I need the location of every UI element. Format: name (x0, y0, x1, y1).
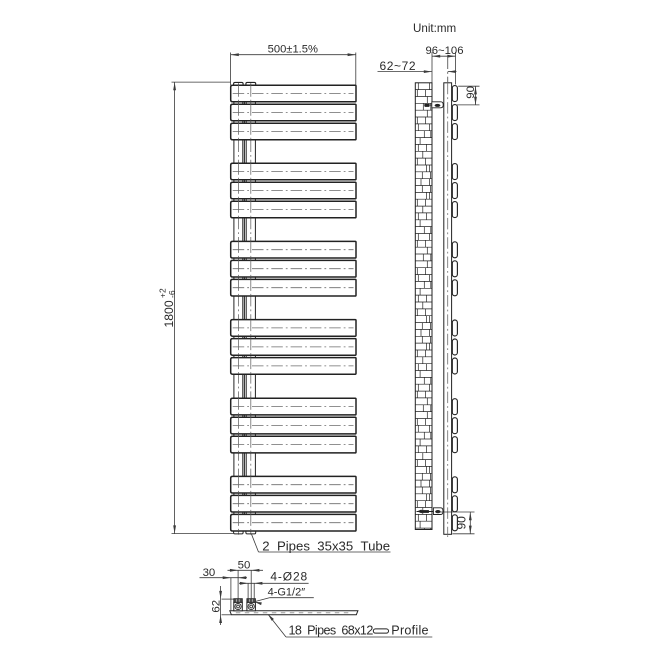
svg-text:62~72: 62~72 (379, 59, 416, 73)
svg-text:500±1.5%: 500±1.5% (268, 43, 318, 55)
svg-text:+2: +2 (157, 288, 167, 298)
svg-text:4-G1/2″: 4-G1/2″ (268, 587, 306, 599)
svg-text:50: 50 (238, 560, 251, 572)
svg-text:-6: -6 (167, 290, 177, 298)
svg-text:96~106: 96~106 (425, 45, 463, 57)
svg-text:62: 62 (210, 600, 222, 613)
svg-text:90: 90 (465, 86, 477, 99)
svg-text:2 Pipes 35x35 Tube: 2 Pipes 35x35 Tube (262, 538, 390, 553)
svg-text:18 Pipes 68x12: 18 Pipes 68x12 (289, 623, 374, 637)
svg-text:Profile: Profile (391, 623, 428, 637)
svg-text:1800: 1800 (162, 300, 176, 327)
svg-text:90: 90 (455, 516, 469, 530)
svg-text:Unit:mm: Unit:mm (413, 22, 456, 35)
svg-text:4-Ø28: 4-Ø28 (270, 569, 308, 583)
